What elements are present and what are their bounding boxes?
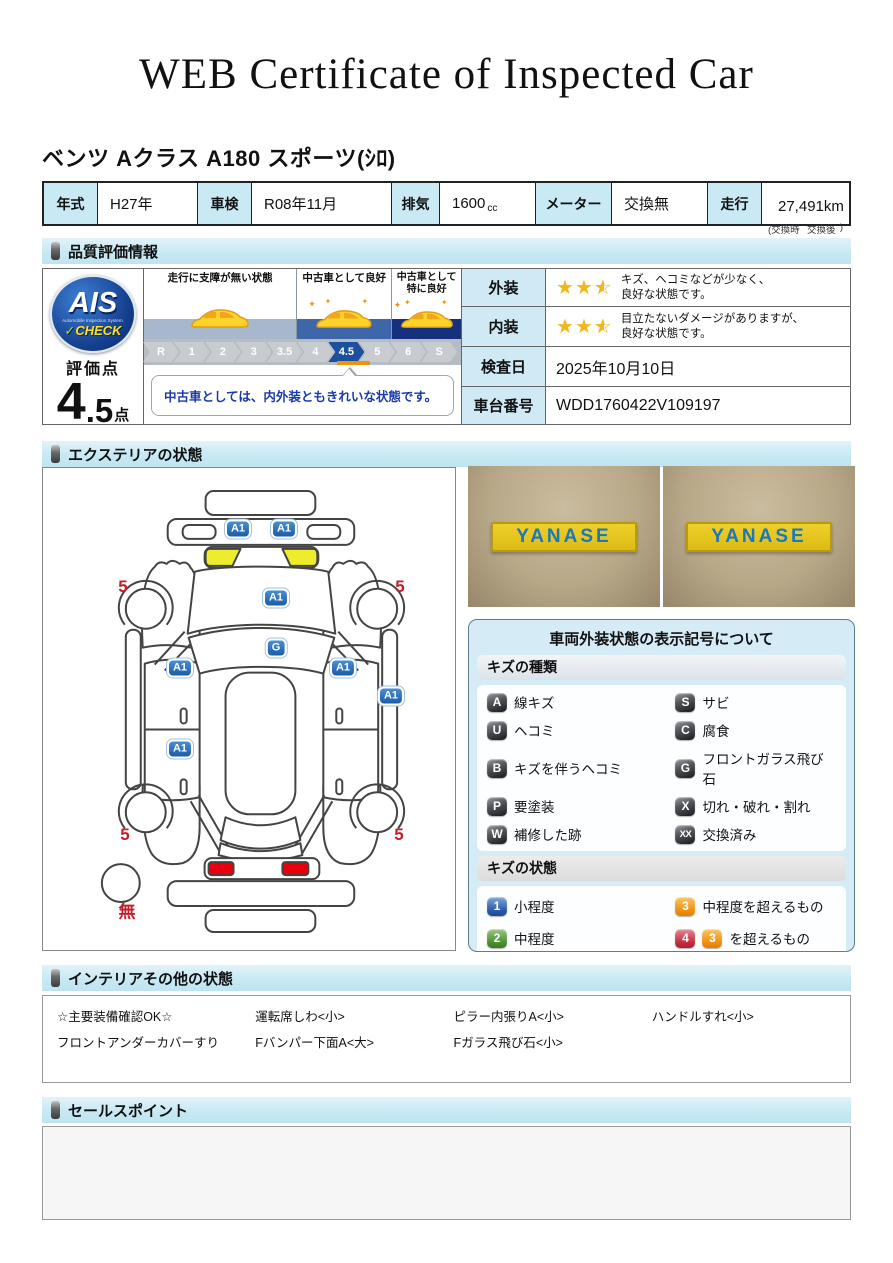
section-title: エクステリアの状態 [68, 444, 203, 465]
zone-no-problem: 走行に支障が無い状態 [144, 269, 296, 339]
state-label: 中程度 [514, 928, 555, 948]
state-label: 中程度を超えるもの [702, 896, 823, 916]
spec-table: 年式 H27年 車検 R08年11月 排気 1600 cc メーター 交換無 走… [42, 181, 851, 226]
scale-step-3: 3 [236, 342, 272, 362]
interior-note-item: ピラー内張りA<小> [454, 1006, 652, 1025]
ais-logo-text: AIS [69, 290, 117, 316]
legend-kind-header: キズの種類 [477, 655, 846, 680]
kind-label: フロントガラス飛び石 [702, 748, 836, 788]
scale-step-5: 5 [359, 342, 395, 362]
kind-badge-icon: S [675, 693, 695, 712]
spec-mileage-label: 走行 [708, 183, 762, 224]
legend-kind-list: A線キズSサビUヘコミC腐食Bキズを伴うヘコミGフロントガラス飛び石P要塗装X切… [477, 685, 846, 851]
legend-kind-A: A線キズ [487, 692, 675, 712]
diagram-marker-A1: A1 [330, 659, 356, 678]
diagram-marker-5: 5 [120, 825, 129, 845]
kind-badge-icon: W [487, 825, 507, 844]
state-badge-icon: 1 [487, 897, 507, 916]
star-rating: ★★☆★ [556, 314, 613, 339]
mileage-note-open: (交換時 [768, 222, 800, 236]
yanase-sign: YANASE [686, 522, 832, 552]
zone-label: 中古車として 特に良好 [392, 272, 461, 296]
scale-step-2: 2 [205, 342, 241, 362]
state-badge-icon: 3 [702, 929, 722, 948]
kind-badge-icon: U [487, 721, 507, 740]
zone-label: 走行に支障が無い状態 [144, 272, 296, 285]
damage-symbol-legend: 車両外装状態の表示記号について キズの種類 A線キズSサビUヘコミC腐食Bキズを… [468, 619, 855, 952]
car-icon [188, 306, 252, 337]
section-marker-icon [51, 969, 60, 987]
legend-kind-X: X切れ・破れ・割れ [675, 796, 836, 816]
row-label: 外装 [462, 269, 546, 306]
zone-label: 中古車として良好 [297, 272, 391, 285]
scale-step-6: 6 [390, 342, 426, 362]
star-rating: ★★☆★ [556, 275, 613, 300]
legend-kind-P: P要塗装 [487, 796, 675, 816]
legend-kind-W: W補修した跡 [487, 824, 675, 844]
spec-year-value: H27年 [98, 183, 198, 224]
vehicle-photo-right: YANASE [663, 466, 855, 607]
section-header-exterior: エクステリアの状態 [42, 440, 851, 467]
kind-badge-icon: A [487, 693, 507, 712]
rating-comment-bubble: 中古車としては、内外装ともきれいな状態です。 [151, 375, 454, 416]
interior-note-item: 運転席しわ<小> [255, 1006, 453, 1025]
section-title: 品質評価情報 [68, 241, 158, 262]
kind-badge-icon: XX [675, 825, 695, 844]
section-header-sales: セールスポイント [42, 1096, 851, 1123]
state-label: を超えるもの [729, 928, 810, 948]
page-title: WEB Certificate of Inspected Car [0, 50, 893, 99]
spec-meter-label: メーター [536, 183, 612, 224]
rating-comment: 中古車としては、内外装ともきれいな状態です。 [164, 386, 437, 405]
rating-scale-panel: 走行に支障が無い状態 中古車として良好 中古車として 特に良好 [144, 269, 462, 424]
row-value: WDD1760422V109197 [556, 397, 721, 415]
diagram-marker-A1: A1 [225, 520, 251, 539]
kind-badge-icon: G [675, 759, 695, 778]
diagram-marker-5: 5 [395, 577, 404, 597]
interior-note-item: ☆主要装備確認OK☆ [57, 1006, 255, 1025]
kind-badge-icon: C [675, 721, 695, 740]
spec-inspection-label: 車検 [198, 183, 252, 224]
check-icon: ✓ [64, 323, 75, 338]
table-row-exterior: 外装 ★★☆★ キズ、ヘコミなどが少なく、 良好な状態です。 [462, 269, 850, 307]
score-unit: 点 [114, 410, 129, 422]
interior-note-item: フロントアンダーカバーすり [57, 1032, 255, 1051]
spec-meter-value: 交換無 [612, 183, 708, 224]
scale-step-4: 4 [298, 342, 334, 362]
row-text: キズ、ヘコミなどが少なく、 良好な状態です。 [621, 273, 771, 303]
state-badge-icon: 3 [675, 897, 695, 916]
legend-kind-S: Sサビ [675, 692, 836, 712]
diagram-marker-5: 5 [118, 577, 127, 597]
spec-inspection-value: R08年11月 [252, 183, 392, 224]
table-row-interior: 内装 ★★☆★ 目立たないダメージがありますが、 良好な状態です。 [462, 307, 850, 347]
active-score-indicator [337, 361, 370, 365]
car-damage-diagram: A1A1A1GA1A1A1A15555無 [42, 467, 456, 951]
legend-state-header: キズの状態 [477, 856, 846, 881]
mileage-km: 27,491km [778, 198, 844, 215]
kind-badge-icon: B [487, 759, 507, 778]
spec-mileage-value: 27,491km (交換時 交換後 ) [762, 183, 849, 224]
kind-label: 切れ・破れ・割れ [702, 796, 810, 816]
mileage-note-close: ) [840, 222, 843, 233]
section-marker-icon [51, 242, 60, 260]
kind-label: ヘコミ [514, 720, 555, 740]
kind-badge-icon: P [487, 797, 507, 816]
scale-step-3.5: 3.5 [267, 342, 303, 362]
legend-kind-B: Bキズを伴うヘコミ [487, 748, 675, 788]
legend-state-3: 3中程度を超えるもの [675, 896, 836, 916]
kind-label: 腐食 [702, 720, 729, 740]
diagram-marker-A1: A1 [167, 659, 193, 678]
table-row-inspection-date: 検査日 2025年10月10日 [462, 347, 850, 387]
quality-panel: AIS Automobile Inspection System. ✓CHECK… [42, 268, 851, 425]
car-icon [400, 308, 454, 337]
legend-kind-XX: XX交換済み [675, 824, 836, 844]
section-title: インテリアその他の状態 [68, 968, 233, 989]
zone-good: 中古車として良好 [296, 269, 391, 339]
certificate-page: WEB Certificate of Inspected Car ベンツ Aクラ… [0, 0, 893, 1263]
score-decimal: .5 [86, 398, 114, 424]
diagram-marker-G: G [266, 639, 287, 658]
spec-displacement-value: 1600 cc [440, 183, 536, 224]
score-integer: 4 [57, 382, 86, 424]
vehicle-photos: YANASE YANASE [468, 466, 855, 607]
legend-state-list: 1小程度3中程度を超えるもの2中程度43を超えるもの [477, 886, 846, 952]
diagram-marker-5: 5 [394, 825, 403, 845]
legend-state-2: 2中程度 [487, 928, 675, 948]
row-label: 車台番号 [462, 387, 546, 424]
kind-label: 交換済み [702, 824, 756, 844]
kind-label: サビ [702, 692, 729, 712]
legend-kind-G: Gフロントガラス飛び石 [675, 748, 836, 788]
state-badge-icon: 4 [675, 929, 695, 948]
displacement-number: 1600 [452, 195, 485, 212]
yanase-sign: YANASE [491, 522, 637, 552]
scale-step-R: R [143, 342, 179, 362]
diagram-marker-A1: A1 [271, 520, 297, 539]
state-label: 小程度 [514, 896, 555, 916]
section-header-interior: インテリアその他の状態 [42, 964, 851, 991]
ais-score-column: AIS Automobile Inspection System. ✓CHECK… [43, 269, 144, 424]
section-marker-icon [51, 1101, 60, 1119]
mileage-note-mid: 交換後 [807, 222, 836, 236]
sales-point-box [42, 1126, 851, 1220]
section-title: セールスポイント [68, 1100, 188, 1121]
legend-title: 車両外装状態の表示記号について [469, 620, 854, 655]
kind-label: キズを伴うヘコミ [514, 758, 622, 778]
row-value: 2025年10月10日 [556, 355, 675, 379]
zone-excellent: 中古車として 特に良好 [391, 269, 461, 339]
ais-check-text: ✓CHECK [64, 323, 121, 339]
row-label: 内装 [462, 307, 546, 346]
legend-state-4: 43を超えるもの [675, 928, 836, 948]
interior-notes-box: ☆主要装備確認OK☆運転席しわ<小>ピラー内張りA<小>ハンドルすれ<小>フロン… [42, 995, 851, 1083]
scale-step-1: 1 [174, 342, 210, 362]
diagram-marker-A1: A1 [263, 589, 289, 608]
kind-label: 補修した跡 [514, 824, 582, 844]
interior-note-item: Fガラス飛び石<小> [454, 1032, 652, 1051]
diagram-marker-A1: A1 [167, 740, 193, 759]
section-marker-icon [51, 445, 60, 463]
row-text: 目立たないダメージがありますが、 良好な状態です。 [621, 312, 804, 342]
diagram-marker-無: 無 [119, 898, 136, 923]
car-outline-drawing [43, 468, 455, 950]
scale-step-S: S [421, 342, 457, 362]
state-badge-icon: 2 [487, 929, 507, 948]
interior-notes-grid: ☆主要装備確認OK☆運転席しわ<小>ピラー内張りA<小>ハンドルすれ<小>フロン… [43, 996, 850, 1051]
car-name: ベンツ Aクラス A180 スポーツ(ｼﾛ) [42, 141, 396, 173]
legend-kind-C: C腐食 [675, 720, 836, 740]
kind-label: 要塗装 [514, 796, 555, 816]
quality-detail-table: 外装 ★★☆★ キズ、ヘコミなどが少なく、 良好な状態です。 内装 ★★☆★ 目… [462, 269, 850, 424]
ais-check-label: CHECK [75, 323, 121, 338]
car-icon [314, 307, 374, 337]
spec-displacement-label: 排気 [392, 183, 440, 224]
rating-scale-steps: R1233.544.556S [144, 339, 461, 365]
interior-note-item [652, 1032, 850, 1051]
kind-badge-icon: X [675, 797, 695, 816]
legend-kind-U: Uヘコミ [487, 720, 675, 740]
interior-note-item: Fバンパー下面A<大> [255, 1032, 453, 1051]
score-value: 4 .5 点 [57, 382, 129, 424]
diagram-marker-A1: A1 [378, 687, 404, 706]
section-header-quality: 品質評価情報 [42, 237, 851, 264]
legend-state-1: 1小程度 [487, 896, 675, 916]
row-label: 検査日 [462, 347, 546, 386]
table-row-chassis-number: 車台番号 WDD1760422V109197 [462, 387, 850, 424]
displacement-unit: cc [487, 203, 497, 214]
scale-step-4.5: 4.5 [328, 342, 364, 362]
ais-logo: AIS Automobile Inspection System. ✓CHECK [50, 275, 136, 353]
spec-year-label: 年式 [44, 183, 98, 224]
rating-zones: 走行に支障が無い状態 中古車として良好 中古車として 特に良好 [144, 269, 461, 339]
kind-label: 線キズ [514, 692, 555, 712]
interior-note-item: ハンドルすれ<小> [652, 1006, 850, 1025]
vehicle-photo-left: YANASE [468, 466, 660, 607]
